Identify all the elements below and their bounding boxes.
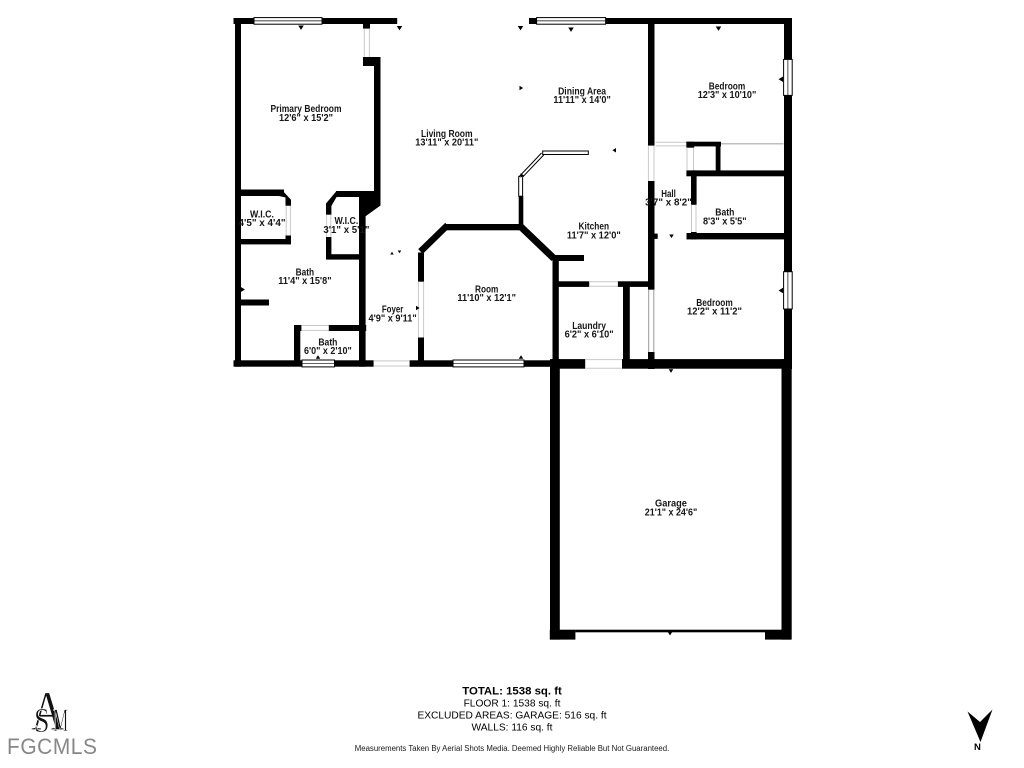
svg-text:Measurements Taken By Aerial S: Measurements Taken By Aerial Shots Media…: [355, 744, 670, 753]
svg-text:11'10" x 12'1": 11'10" x 12'1": [457, 293, 516, 304]
svg-text:21'1" x 24'6": 21'1" x 24'6": [645, 508, 698, 519]
svg-text:6'2" x 6'10": 6'2" x 6'10": [565, 330, 614, 341]
svg-text:TOTAL: 1538 sq. ft: TOTAL: 1538 sq. ft: [462, 686, 562, 698]
svg-text:FLOOR 1: 1538 sq. ft: FLOOR 1: 1538 sq. ft: [464, 699, 561, 710]
svg-text:3'1" x 5'1": 3'1" x 5'1": [323, 225, 369, 236]
svg-text:11'7" x 12'0": 11'7" x 12'0": [567, 230, 621, 241]
svg-text:12'3" x 10'10": 12'3" x 10'10": [698, 90, 757, 101]
svg-text:12'6" x 15'2": 12'6" x 15'2": [279, 113, 333, 124]
svg-text:12'2" x 11'2": 12'2" x 11'2": [687, 307, 742, 318]
svg-text:EXCLUDED AREAS: GARAGE: 516 sq: EXCLUDED AREAS: GARAGE: 516 sq. ft: [417, 711, 606, 722]
svg-text:11'4" x 15'8": 11'4" x 15'8": [278, 276, 332, 287]
svg-text:4'9" x 9'11": 4'9" x 9'11": [369, 314, 417, 325]
svg-text:4'5" x 4'4": 4'5" x 4'4": [239, 218, 286, 229]
svg-text:8'3" x 5'5": 8'3" x 5'5": [703, 216, 747, 227]
svg-text:13'11" x 20'11": 13'11" x 20'11": [415, 138, 478, 149]
svg-text:3'7" x 8'2": 3'7" x 8'2": [645, 198, 692, 209]
svg-text:WALLS: 116 sq. ft: WALLS: 116 sq. ft: [472, 723, 553, 734]
svg-text:6'0" x 2'10": 6'0" x 2'10": [304, 346, 352, 357]
svg-text:11'11" x 14'0": 11'11" x 14'0": [553, 95, 611, 106]
